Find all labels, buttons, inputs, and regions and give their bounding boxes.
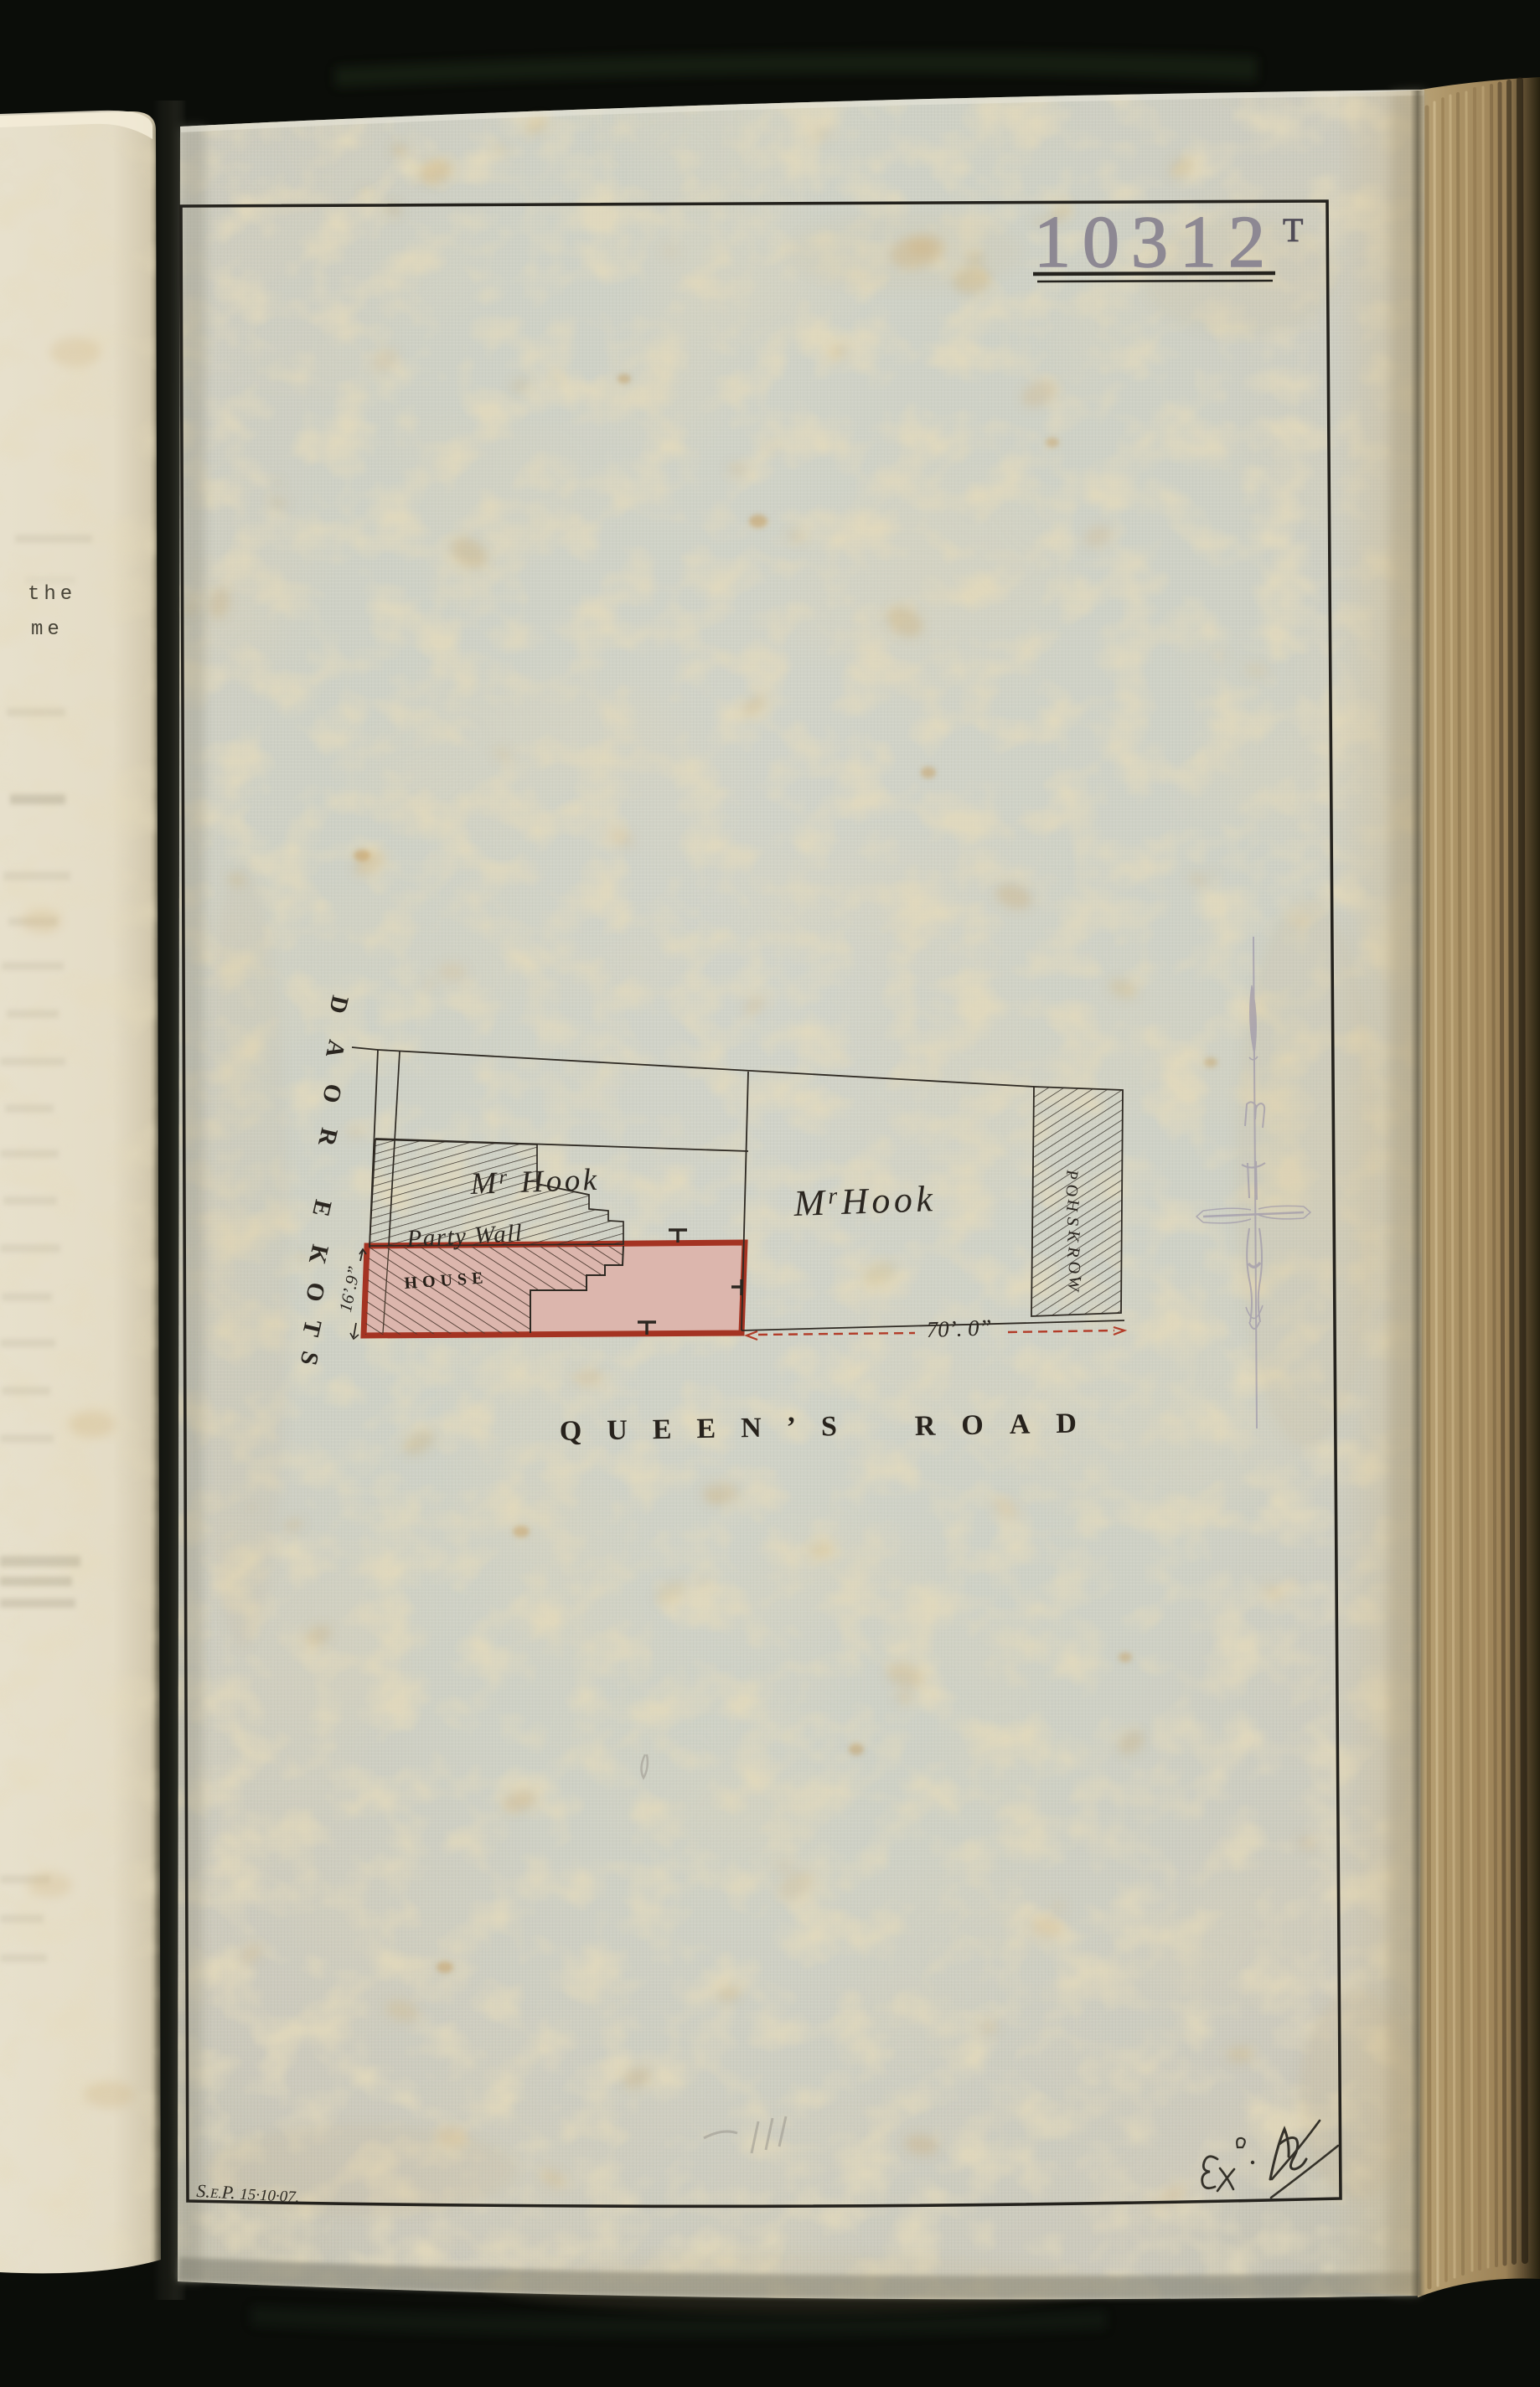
svg-text:W: W bbox=[1063, 1274, 1084, 1294]
svg-text:Mr Hook: Mr Hook bbox=[469, 1163, 600, 1201]
svg-text:QUEEN’S: QUEEN’S bbox=[559, 1411, 862, 1447]
svg-text:ROAD: ROAD bbox=[914, 1408, 1103, 1442]
svg-text:MrHook: MrHook bbox=[793, 1178, 937, 1224]
svg-text:10312: 10312 bbox=[1034, 202, 1277, 283]
svg-text:T: T bbox=[1283, 211, 1303, 249]
svg-text:me: me bbox=[31, 618, 64, 641]
svg-text:the: the bbox=[28, 583, 76, 606]
svg-text:70’. 0”: 70’. 0” bbox=[926, 1315, 992, 1342]
